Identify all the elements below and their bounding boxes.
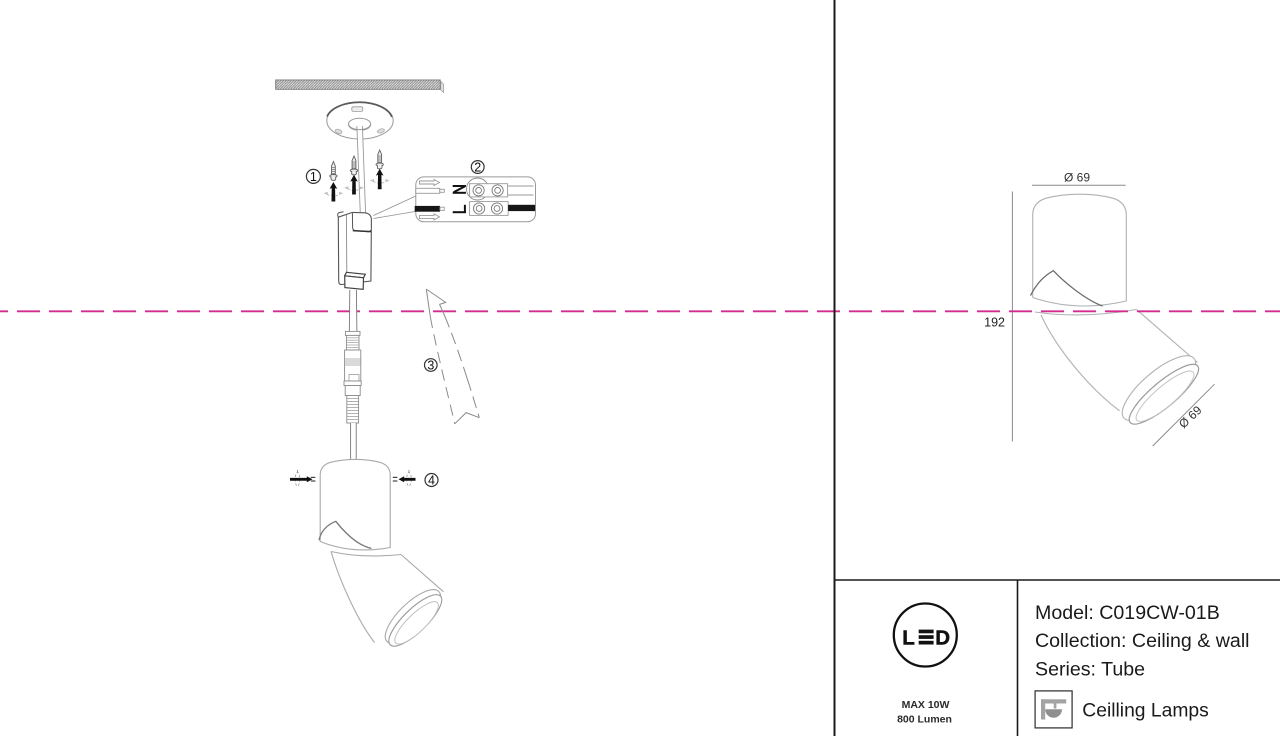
svg-text:4: 4 bbox=[428, 474, 435, 488]
svg-text:800 Lumen: 800 Lumen bbox=[897, 714, 952, 726]
svg-text:Model: C019CW-01B: Model: C019CW-01B bbox=[1035, 602, 1220, 624]
svg-text:2: 2 bbox=[474, 161, 481, 175]
svg-text:MAX 10W: MAX 10W bbox=[902, 699, 950, 711]
svg-text:D: D bbox=[935, 627, 950, 650]
svg-text:Collection: Ceiling & wall: Collection: Ceiling & wall bbox=[1035, 630, 1250, 652]
svg-text:Ø 69: Ø 69 bbox=[1176, 403, 1205, 431]
svg-text:1: 1 bbox=[310, 170, 317, 184]
svg-text:Series: Tube: Series: Tube bbox=[1035, 658, 1145, 680]
svg-text:192: 192 bbox=[984, 316, 1005, 330]
svg-text:Ceilling Lamps: Ceilling Lamps bbox=[1082, 700, 1208, 721]
svg-text:3: 3 bbox=[427, 359, 434, 373]
svg-text:L: L bbox=[902, 627, 915, 650]
svg-text:Ø 69: Ø 69 bbox=[1064, 171, 1090, 185]
